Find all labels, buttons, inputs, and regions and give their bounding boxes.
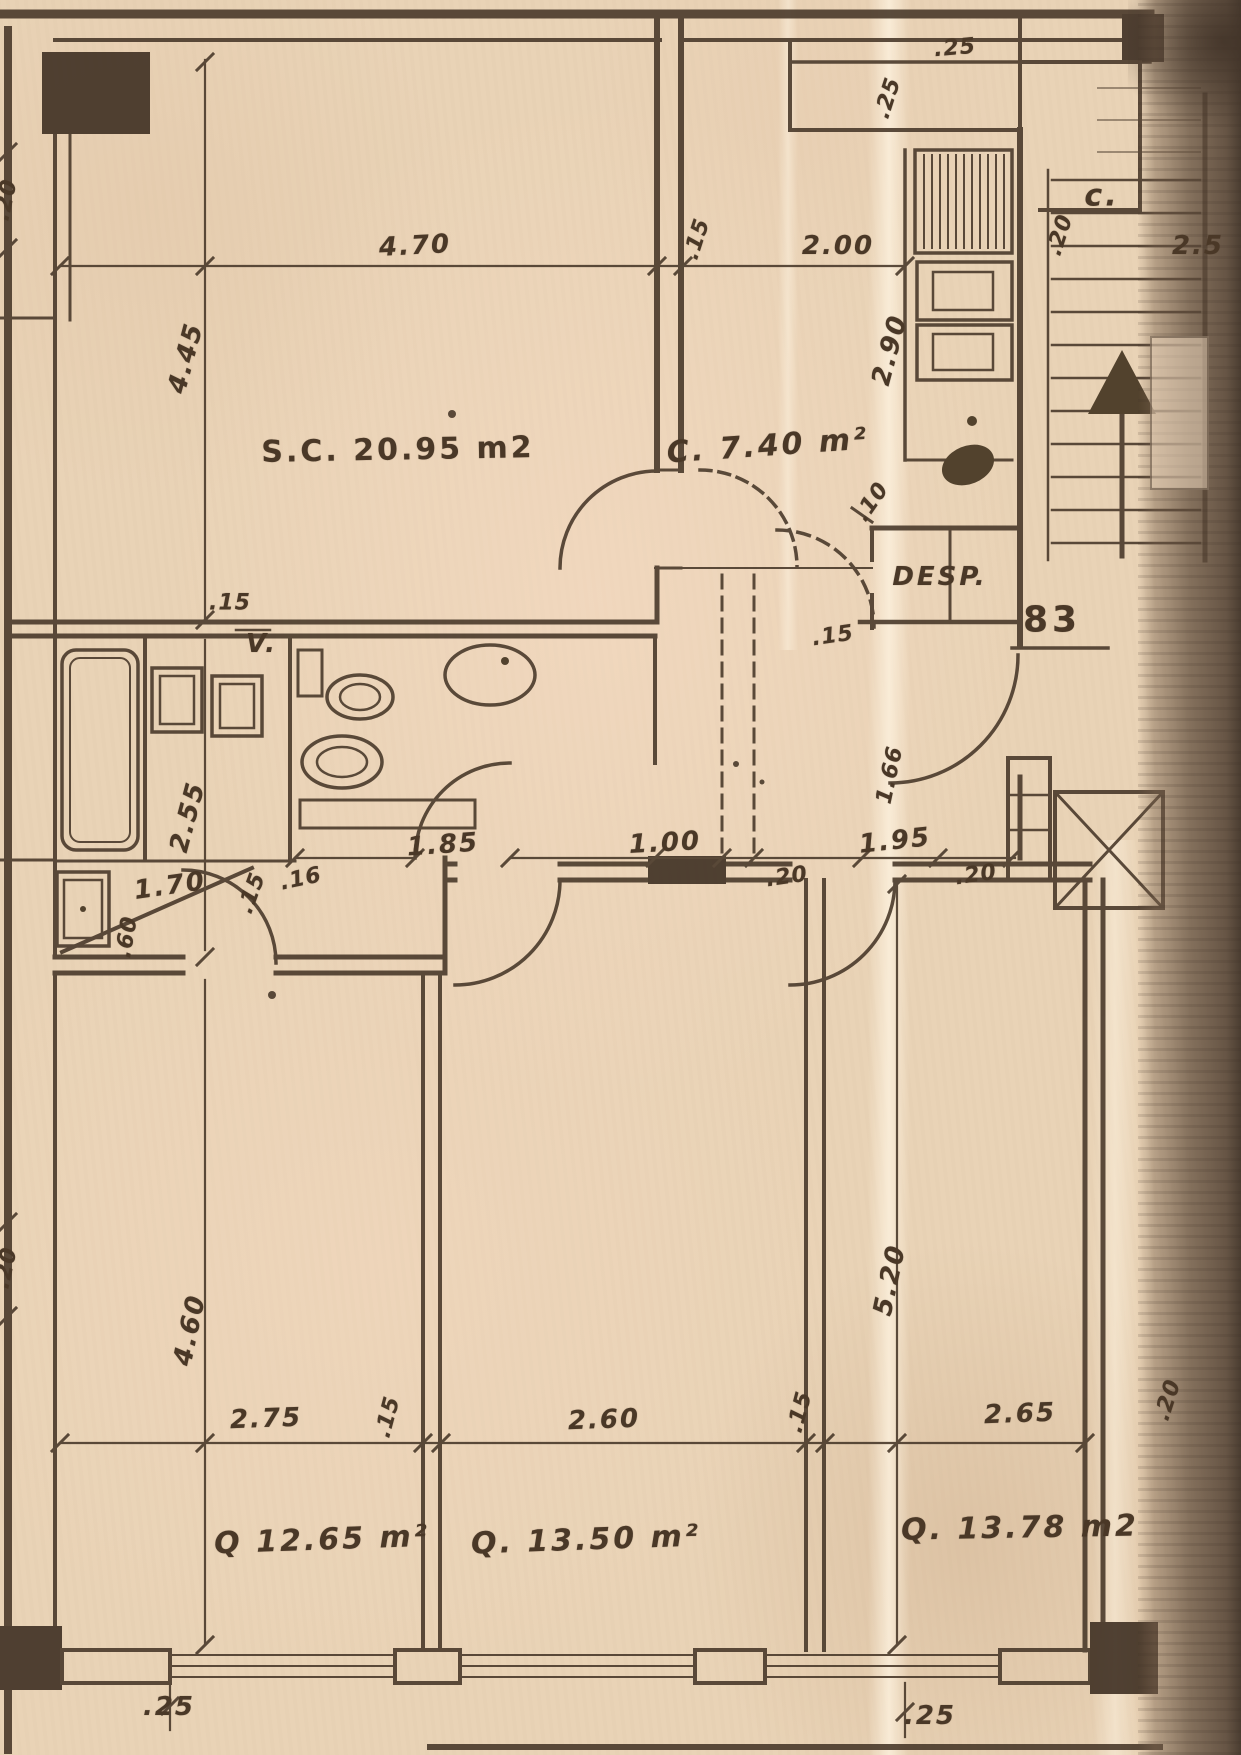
staircase xyxy=(1048,88,1205,560)
dim-bedroom2-width: 2.60 xyxy=(567,1404,640,1437)
dim-sill-left: .25 xyxy=(143,1692,195,1722)
floor-plan-page: S.C. 20.95 m2 C. 7.40 m² DESP. c. V. Q 1… xyxy=(0,0,1241,1755)
room-label-pantry: DESP. xyxy=(892,562,987,592)
dim-sill-right: .25 xyxy=(904,1701,956,1731)
dim-bath-top-wall: .15 xyxy=(209,591,251,616)
dim-stair-width: 2.5 xyxy=(1172,231,1224,261)
bath-step xyxy=(300,800,475,828)
bottom-wall-windows xyxy=(0,1622,1160,1747)
dim-bath-width: 1.85 xyxy=(406,828,480,863)
dim-bedroom1-width: 2.75 xyxy=(229,1403,302,1436)
bathroom-fixtures xyxy=(57,630,535,946)
column-top-left xyxy=(42,52,150,134)
hall-door-arc-dashed xyxy=(700,470,797,567)
cooktop xyxy=(917,262,1012,320)
window-2 xyxy=(460,1655,695,1677)
vestibule-door-arc xyxy=(890,655,1018,783)
service-shafts xyxy=(1008,648,1163,908)
living-door-arc xyxy=(560,471,657,568)
dim-corridor-width: 2.00 xyxy=(802,231,874,261)
sheet-number: 83 xyxy=(1023,600,1081,641)
window-1 xyxy=(170,1655,395,1677)
elevator-x xyxy=(1055,792,1163,908)
bidet xyxy=(302,736,382,788)
room-label-living: S.C. 20.95 m2 xyxy=(261,430,535,470)
sink-hatch xyxy=(924,155,1004,248)
up-arrow-icon xyxy=(1088,350,1156,414)
washbasin xyxy=(445,645,535,705)
room-label-bedroom3: Q. 13.78 m2 xyxy=(901,1508,1139,1547)
dim-bedroom3-width: 2.65 xyxy=(983,1398,1056,1431)
ink-blot xyxy=(936,437,1000,492)
ink-speck xyxy=(967,416,977,426)
dimension-lines xyxy=(60,60,1085,1737)
bedroom2-door-arc xyxy=(455,880,560,985)
dim-living-width: 4.70 xyxy=(378,229,452,263)
cistern xyxy=(298,650,322,696)
dim-kitchen-top-wall: .25 xyxy=(933,34,977,63)
dim-hall-width: 1.00 xyxy=(628,826,702,860)
kitchen-fixtures xyxy=(905,150,1012,493)
room-label-closet: c. xyxy=(1084,179,1119,214)
toilet xyxy=(327,675,393,719)
bathtub xyxy=(62,650,138,850)
tap-dot xyxy=(501,657,509,665)
pantry-door-arc-dashed xyxy=(777,530,874,627)
open-passage-dashes xyxy=(722,575,754,855)
window-3 xyxy=(765,1655,1000,1677)
column-top-right xyxy=(1122,14,1164,62)
room-label-vent: V. xyxy=(246,629,278,659)
wall-block xyxy=(648,856,726,884)
